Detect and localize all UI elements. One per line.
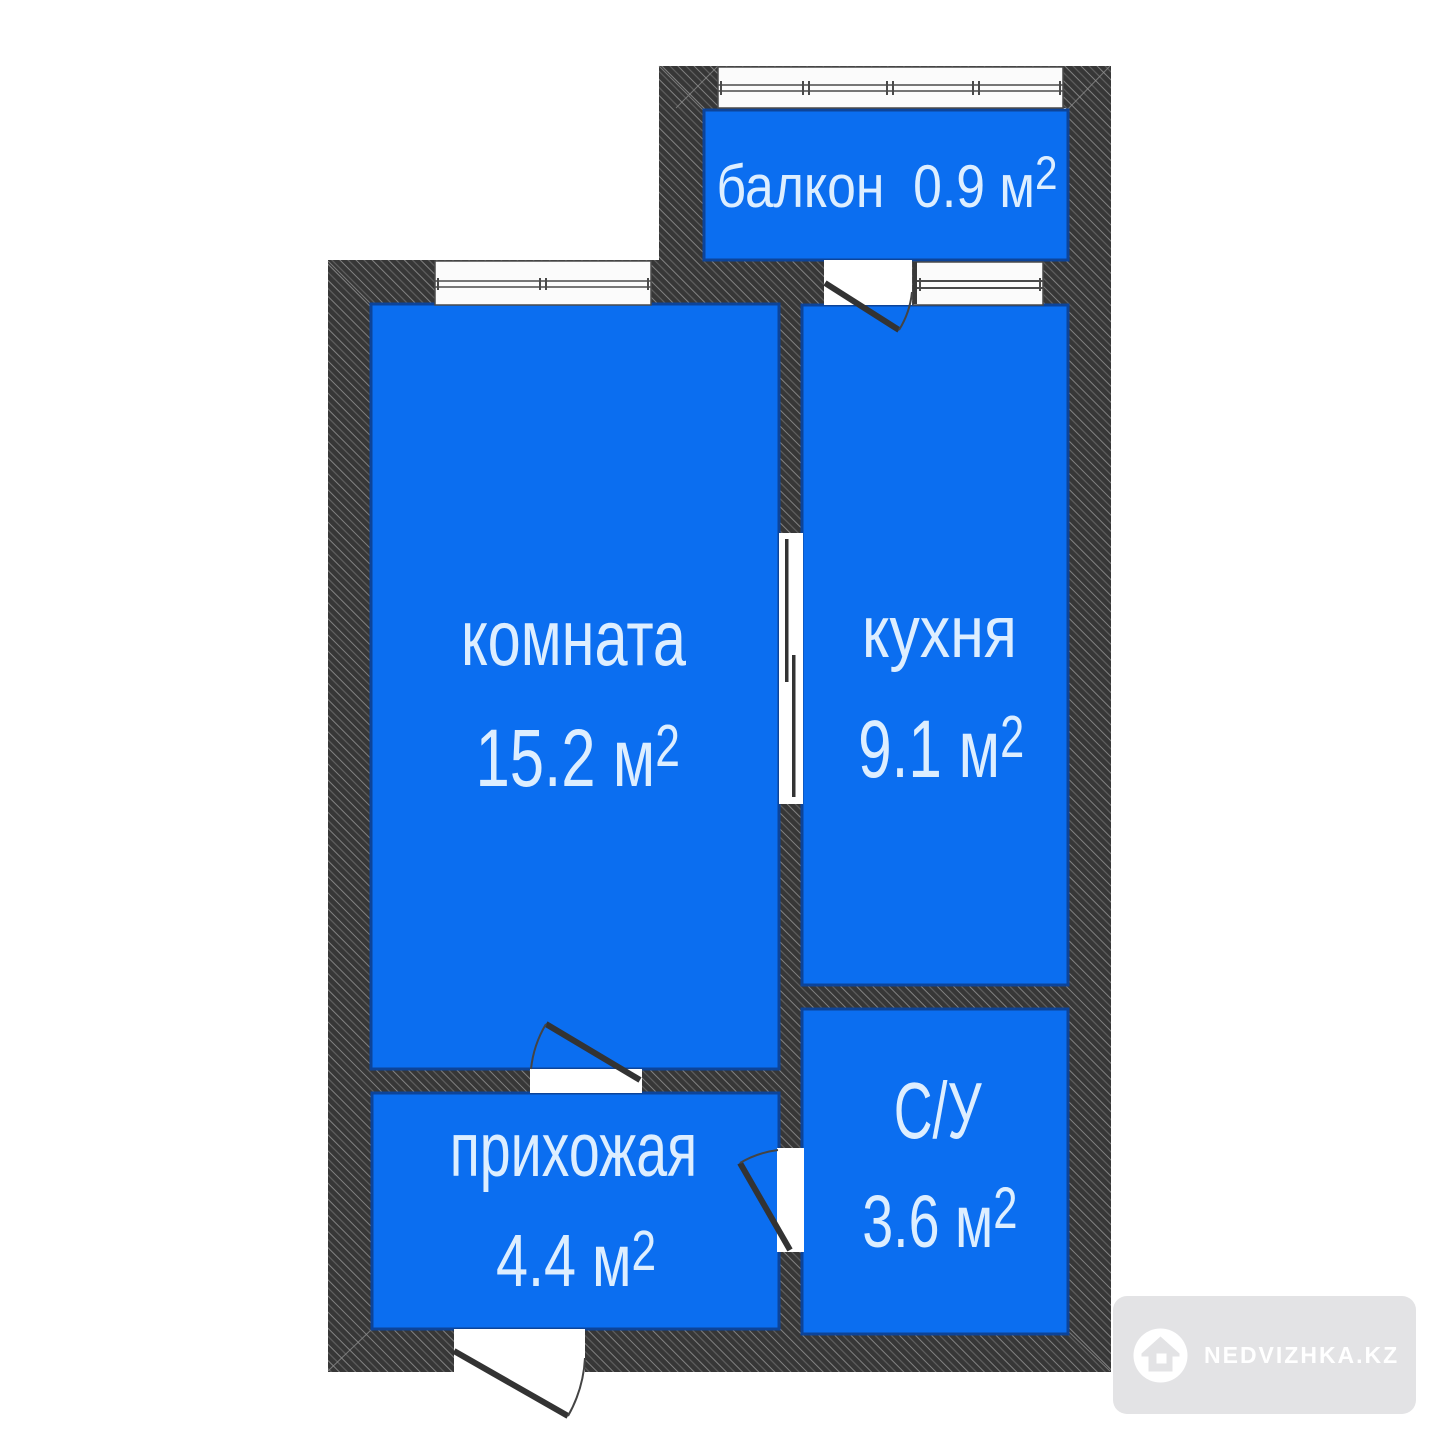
- svg-text:балкон 0.9 м2: балкон 0.9 м2: [717, 147, 1058, 220]
- svg-text:кухня: кухня: [862, 592, 1017, 673]
- svg-text:С/У: С/У: [894, 1066, 982, 1155]
- svg-text:NEDVIZHKA.KZ: NEDVIZHKA.KZ: [1204, 1342, 1399, 1368]
- svg-text:прихожая: прихожая: [450, 1107, 697, 1193]
- svg-text:комната: комната: [461, 594, 686, 682]
- svg-text:15.2 м2: 15.2 м2: [475, 713, 679, 805]
- svg-text:9.1 м2: 9.1 м2: [858, 703, 1024, 795]
